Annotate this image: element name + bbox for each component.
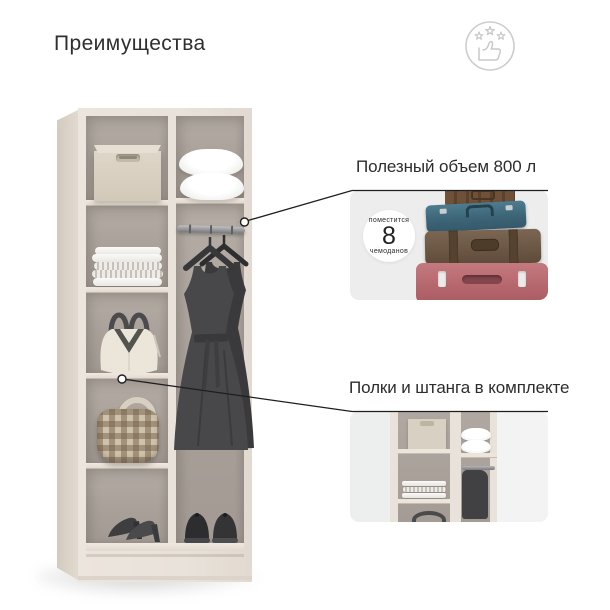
badge-bottom-text: чемоданов xyxy=(370,248,408,255)
storage-box-handle-bar xyxy=(119,156,137,159)
mens-shoes xyxy=(181,501,241,547)
mini-storage-box xyxy=(408,419,446,449)
capacity-badge: поместится 8 чемоданов xyxy=(363,210,415,262)
storage-box-top xyxy=(94,145,161,153)
linen-layer xyxy=(94,262,162,270)
zipper-tag xyxy=(518,271,526,287)
mini-backdrop xyxy=(497,411,548,522)
mini-box-handle xyxy=(420,421,434,426)
wardrobe-bottom-edge xyxy=(78,576,252,580)
storage-box xyxy=(94,151,161,201)
dresses-on-hangers xyxy=(172,238,256,462)
mini-shelf xyxy=(461,453,497,458)
pillow xyxy=(180,173,244,200)
trunk-handle xyxy=(471,190,495,200)
wardrobe-side-panel xyxy=(57,110,78,580)
pink-suitcase-handle xyxy=(462,275,502,284)
shelf-board xyxy=(86,463,168,469)
wardrobe-plinth-recess xyxy=(86,554,244,557)
teal-suitcase-handle xyxy=(465,204,494,217)
folded-linens xyxy=(92,247,163,288)
teal-suitcase xyxy=(425,200,526,232)
leather-suitcase-handle xyxy=(471,239,499,252)
mini-bag-handle xyxy=(412,511,446,522)
mini-linen xyxy=(402,493,446,498)
rod-bracket xyxy=(210,225,212,234)
linen-layer xyxy=(92,254,162,262)
leather-suitcase xyxy=(425,229,542,265)
mini-shelf xyxy=(398,499,450,504)
latch xyxy=(440,209,447,214)
suitcases-image: поместится 8 чемоданов xyxy=(350,190,548,300)
badge-number: 8 xyxy=(382,224,396,248)
zipper-tag xyxy=(438,271,446,287)
mini-garment xyxy=(462,470,488,519)
pillow xyxy=(179,149,243,176)
white-handbag xyxy=(94,299,164,375)
strap xyxy=(449,231,459,265)
mini-left-frame xyxy=(390,411,398,522)
mini-linen xyxy=(402,481,446,486)
checkered-handbag xyxy=(97,409,159,463)
callout-equipment-title: Полки и штанга в комплекте xyxy=(349,378,569,398)
rod-bracket xyxy=(231,226,233,235)
pink-suitcase xyxy=(416,263,548,300)
mini-linen xyxy=(403,487,446,492)
strap xyxy=(509,229,519,263)
rod-bracket xyxy=(189,224,191,233)
linen-layer xyxy=(92,270,163,278)
wardrobe-interior-image xyxy=(350,411,548,522)
latch xyxy=(505,205,512,210)
linen-layer xyxy=(93,278,162,286)
mini-shelf xyxy=(398,449,450,454)
mini-divider xyxy=(450,411,461,522)
callout-volume-title: Полезный объем 800 л xyxy=(356,157,536,177)
womens-heels xyxy=(106,507,168,545)
mini-pillow xyxy=(461,440,491,453)
